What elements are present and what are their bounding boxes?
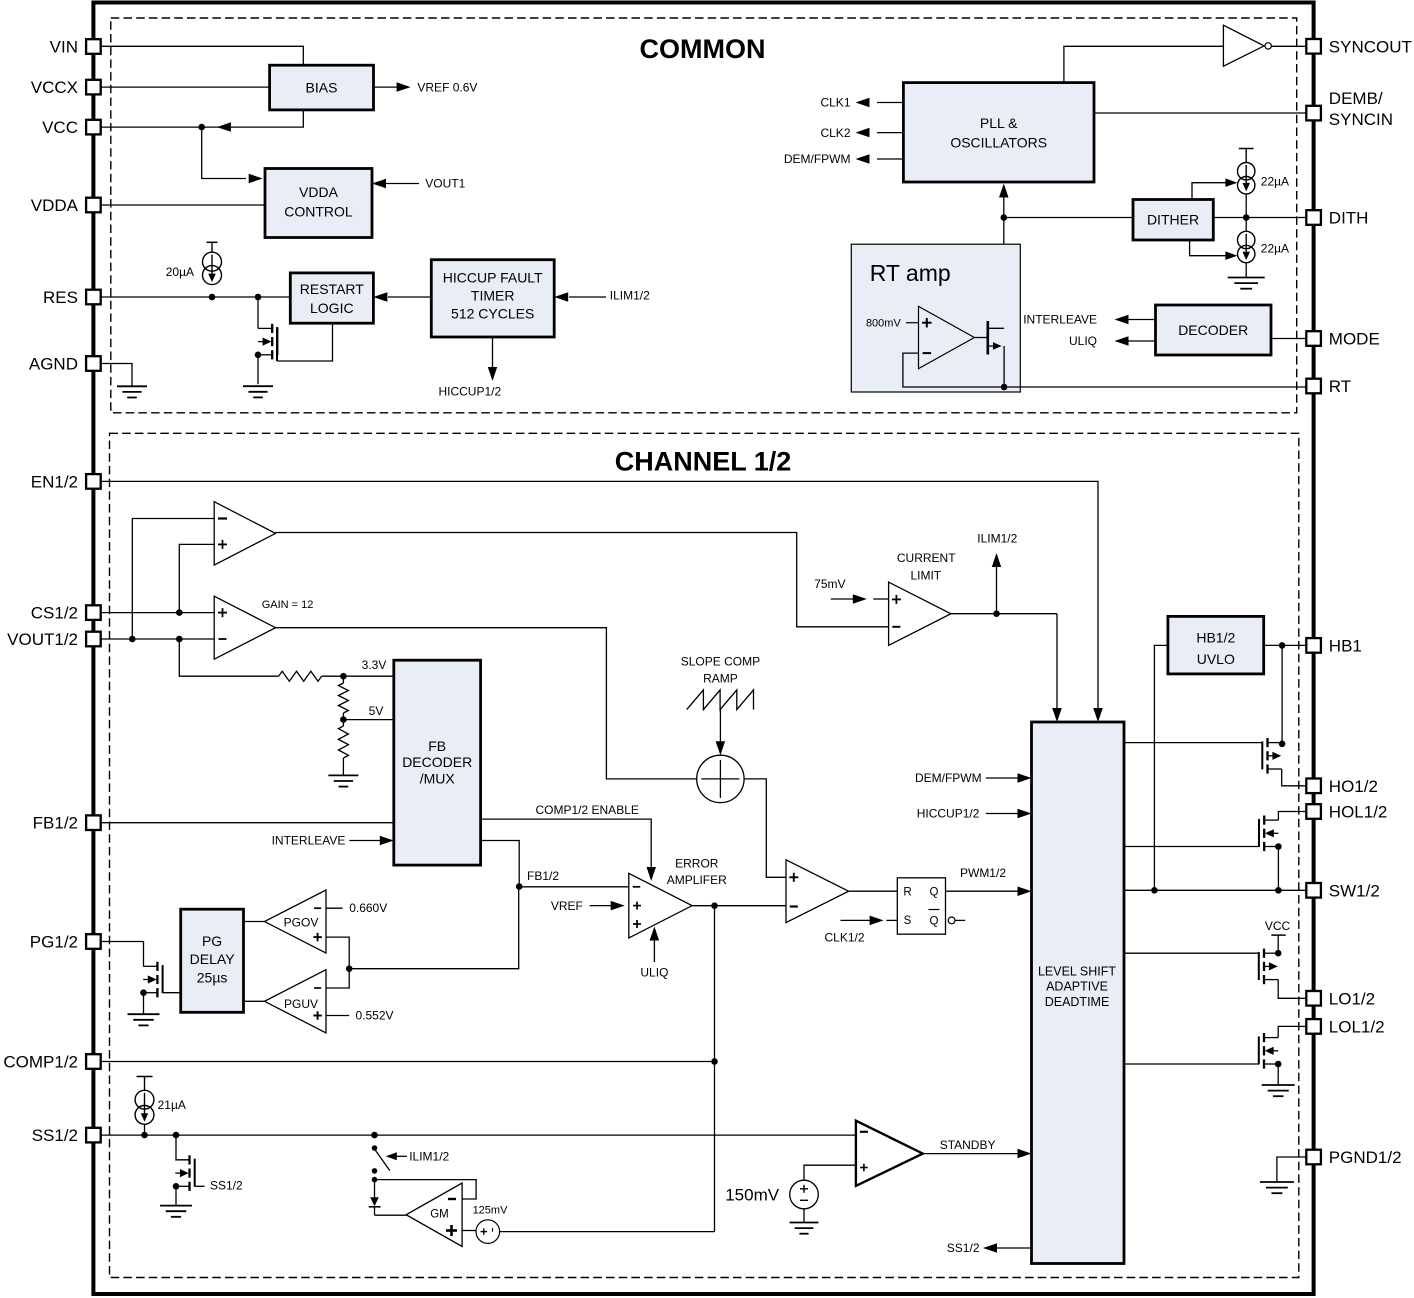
svg-text:DECODER: DECODER <box>1178 322 1248 338</box>
svg-text:Q: Q <box>930 915 939 927</box>
svg-text:ILIM1/2: ILIM1/2 <box>409 1149 449 1163</box>
svg-text:3.3V: 3.3V <box>362 658 387 672</box>
svg-text:HB1: HB1 <box>1329 636 1362 655</box>
svg-text:0.552V: 0.552V <box>356 1009 394 1023</box>
svg-text:SS1/2: SS1/2 <box>32 1126 78 1145</box>
svg-text:VOUT1: VOUT1 <box>425 177 465 191</box>
svg-text:R: R <box>903 886 911 898</box>
svg-text:VCC: VCC <box>42 118 78 137</box>
svg-text:512 CYCLES: 512 CYCLES <box>451 305 534 321</box>
svg-text:FB: FB <box>428 738 446 754</box>
svg-text:DEMB/: DEMB/ <box>1329 89 1383 108</box>
svg-text:STANDBY: STANDBY <box>940 1138 996 1152</box>
svg-text:CHANNEL 1/2: CHANNEL 1/2 <box>615 446 792 476</box>
svg-text:HB1/2: HB1/2 <box>1196 629 1235 645</box>
svg-text:COMMON: COMMON <box>640 34 766 64</box>
svg-text:SW1/2: SW1/2 <box>1329 881 1380 900</box>
svg-text:HO1/2: HO1/2 <box>1329 777 1378 796</box>
svg-text:CLK1/2: CLK1/2 <box>824 931 864 945</box>
svg-text:DELAY: DELAY <box>190 951 236 967</box>
svg-text:SS1/2: SS1/2 <box>210 1179 243 1193</box>
svg-text:SYNCOUT: SYNCOUT <box>1329 37 1412 56</box>
svg-text:150mV: 150mV <box>725 1185 780 1204</box>
svg-text:LIMIT: LIMIT <box>910 568 941 582</box>
svg-text:FB1/2: FB1/2 <box>33 814 78 833</box>
svg-text:PG: PG <box>202 933 222 949</box>
svg-text:LOL1/2: LOL1/2 <box>1329 1017 1385 1036</box>
svg-text:VREF: VREF <box>551 899 583 913</box>
svg-text:25µs: 25µs <box>197 969 228 985</box>
svg-text:SYNCIN: SYNCIN <box>1329 110 1393 129</box>
svg-text:UVLO: UVLO <box>1197 651 1235 667</box>
svg-text:20µA: 20µA <box>166 265 194 279</box>
svg-text:DITHER: DITHER <box>1147 212 1199 228</box>
svg-text:RT: RT <box>1329 377 1351 396</box>
svg-text:PGOV: PGOV <box>284 916 319 930</box>
svg-text:HICCUP1/2: HICCUP1/2 <box>438 385 501 399</box>
svg-text:HICCUP FAULT: HICCUP FAULT <box>443 269 543 285</box>
svg-text:21µA: 21µA <box>158 1098 186 1112</box>
svg-text:22µA: 22µA <box>1261 242 1289 256</box>
svg-text:125mV: 125mV <box>473 1205 509 1217</box>
svg-text:PG1/2: PG1/2 <box>30 932 78 951</box>
svg-text:800mV: 800mV <box>866 318 902 330</box>
svg-text:GAIN = 12: GAIN = 12 <box>262 599 314 611</box>
svg-text:VREF 0.6V: VREF 0.6V <box>417 80 477 94</box>
svg-text:AGND: AGND <box>29 354 78 373</box>
svg-text:DEM/FPWM: DEM/FPWM <box>915 771 982 785</box>
svg-text:RESTART: RESTART <box>300 281 364 297</box>
svg-text:SLOPE COMP: SLOPE COMP <box>681 654 760 668</box>
svg-text:GM: GM <box>430 1209 449 1221</box>
svg-text:VDDA: VDDA <box>299 184 339 200</box>
svg-text:RT amp: RT amp <box>870 260 951 286</box>
svg-text:INTERLEAVE: INTERLEAVE <box>1023 313 1097 327</box>
svg-text:DEADTIME: DEADTIME <box>1045 995 1110 1009</box>
svg-text:ERROR: ERROR <box>675 857 719 871</box>
svg-text:LEVEL SHIFT: LEVEL SHIFT <box>1038 964 1116 978</box>
svg-text:COMP1/2 ENABLE: COMP1/2 ENABLE <box>536 803 639 817</box>
svg-text:0.660V: 0.660V <box>349 901 387 915</box>
svg-text:PGND1/2: PGND1/2 <box>1329 1148 1402 1167</box>
svg-text:DITH: DITH <box>1329 208 1369 227</box>
svg-text:BIAS: BIAS <box>306 79 338 95</box>
svg-text:5V: 5V <box>369 704 384 718</box>
svg-text:COMP1/2: COMP1/2 <box>3 1052 78 1071</box>
svg-text:MODE: MODE <box>1329 329 1380 348</box>
svg-text:VCC: VCC <box>1265 919 1291 933</box>
svg-text:22µA: 22µA <box>1261 175 1289 189</box>
svg-text:LOGIC: LOGIC <box>310 300 354 316</box>
svg-text:VDDA: VDDA <box>31 196 79 215</box>
svg-text:LO1/2: LO1/2 <box>1329 989 1375 1008</box>
svg-text:VCCX: VCCX <box>31 78 78 97</box>
svg-text:ILIM1/2: ILIM1/2 <box>977 532 1017 546</box>
svg-text:/MUX: /MUX <box>420 770 456 786</box>
svg-text:TIMER: TIMER <box>471 287 515 303</box>
svg-text:CLK2: CLK2 <box>820 126 850 140</box>
svg-text:INTERLEAVE: INTERLEAVE <box>272 834 346 848</box>
svg-text:OSCILLATORS: OSCILLATORS <box>950 134 1047 150</box>
svg-text:AMPLIFER: AMPLIFER <box>667 873 727 887</box>
svg-text:ULIQ: ULIQ <box>1069 334 1097 348</box>
svg-text:PWM1/2: PWM1/2 <box>960 866 1006 880</box>
svg-text:VOUT1/2: VOUT1/2 <box>7 630 78 649</box>
svg-text:S: S <box>904 915 912 927</box>
svg-text:75mV: 75mV <box>814 577 845 591</box>
svg-text:ILIM1/2: ILIM1/2 <box>610 289 650 303</box>
svg-text:RAMP: RAMP <box>703 672 738 686</box>
svg-text:ADAPTIVE: ADAPTIVE <box>1046 979 1108 993</box>
svg-text:DEM/FPWM: DEM/FPWM <box>784 152 851 166</box>
svg-text:FB1/2: FB1/2 <box>527 869 559 883</box>
svg-text:Q: Q <box>930 886 939 898</box>
svg-text:PGUV: PGUV <box>284 997 318 1011</box>
svg-text:EN1/2: EN1/2 <box>31 472 78 491</box>
svg-text:CLK1: CLK1 <box>820 96 850 110</box>
svg-text:VIN: VIN <box>50 37 78 56</box>
svg-text:CURRENT: CURRENT <box>897 551 956 565</box>
svg-text:DECODER: DECODER <box>402 754 472 770</box>
svg-text:PLL &: PLL & <box>980 115 1018 131</box>
svg-text:CS1/2: CS1/2 <box>31 604 78 623</box>
svg-text:SS1/2: SS1/2 <box>947 1241 980 1255</box>
svg-text:RES: RES <box>43 288 78 307</box>
svg-text:ULIQ: ULIQ <box>640 966 668 980</box>
svg-text:HOL1/2: HOL1/2 <box>1329 802 1388 821</box>
svg-text:HICCUP1/2: HICCUP1/2 <box>917 807 980 821</box>
svg-text:CONTROL: CONTROL <box>284 203 353 219</box>
